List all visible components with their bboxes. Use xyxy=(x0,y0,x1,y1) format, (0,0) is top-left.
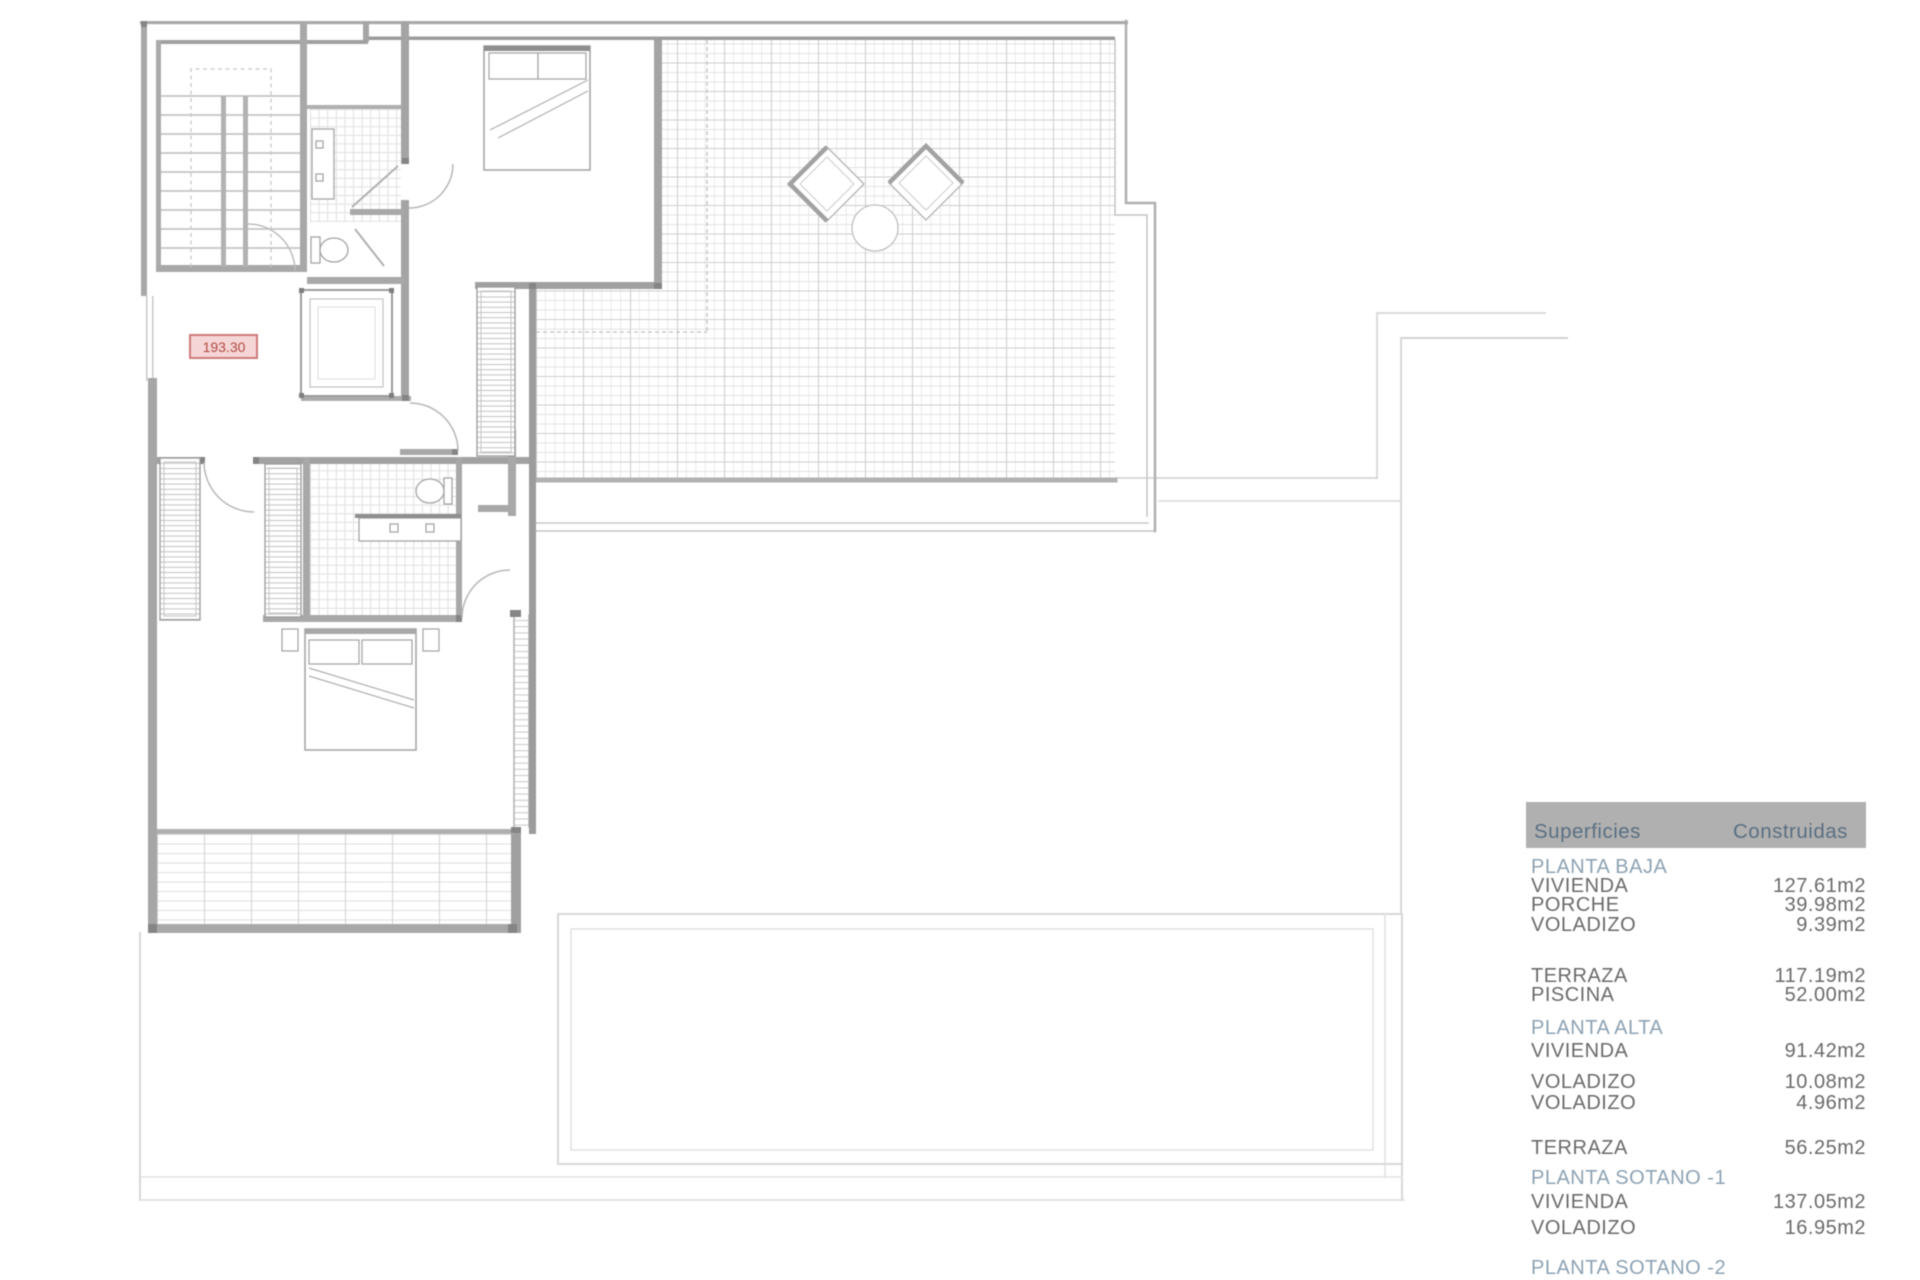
svg-text:PLANTA SOTANO -1: PLANTA SOTANO -1 xyxy=(1531,1167,1726,1189)
svg-text:TERRAZA: TERRAZA xyxy=(1531,1137,1628,1159)
svg-text:VIVIENDA: VIVIENDA xyxy=(1531,1040,1629,1062)
svg-text:PLANTA SOTANO -2: PLANTA SOTANO -2 xyxy=(1531,1257,1726,1279)
svg-text:Superficies: Superficies xyxy=(1534,820,1641,843)
svg-text:VOLADIZO: VOLADIZO xyxy=(1531,1071,1636,1093)
svg-text:52.00m2: 52.00m2 xyxy=(1785,984,1866,1006)
svg-text:9.39m2: 9.39m2 xyxy=(1796,914,1866,936)
svg-text:39.98m2: 39.98m2 xyxy=(1785,894,1866,916)
svg-text:PLANTA ALTA: PLANTA ALTA xyxy=(1531,1017,1663,1039)
svg-text:10.08m2: 10.08m2 xyxy=(1785,1071,1866,1093)
svg-text:4.96m2: 4.96m2 xyxy=(1796,1092,1866,1114)
svg-text:56.25m2: 56.25m2 xyxy=(1785,1137,1866,1159)
svg-text:193.30: 193.30 xyxy=(203,339,246,355)
svg-text:PORCHE: PORCHE xyxy=(1531,894,1620,916)
svg-text:VOLADIZO: VOLADIZO xyxy=(1531,1092,1636,1114)
svg-text:VOLADIZO: VOLADIZO xyxy=(1531,1217,1636,1239)
svg-text:137.05m2: 137.05m2 xyxy=(1773,1191,1866,1213)
svg-text:PISCINA: PISCINA xyxy=(1531,984,1615,1006)
svg-text:VOLADIZO: VOLADIZO xyxy=(1531,914,1636,936)
svg-text:Construidas: Construidas xyxy=(1733,820,1848,843)
svg-text:VIVIENDA: VIVIENDA xyxy=(1531,1191,1629,1213)
svg-text:16.95m2: 16.95m2 xyxy=(1785,1217,1866,1239)
svg-text:91.42m2: 91.42m2 xyxy=(1785,1040,1866,1062)
